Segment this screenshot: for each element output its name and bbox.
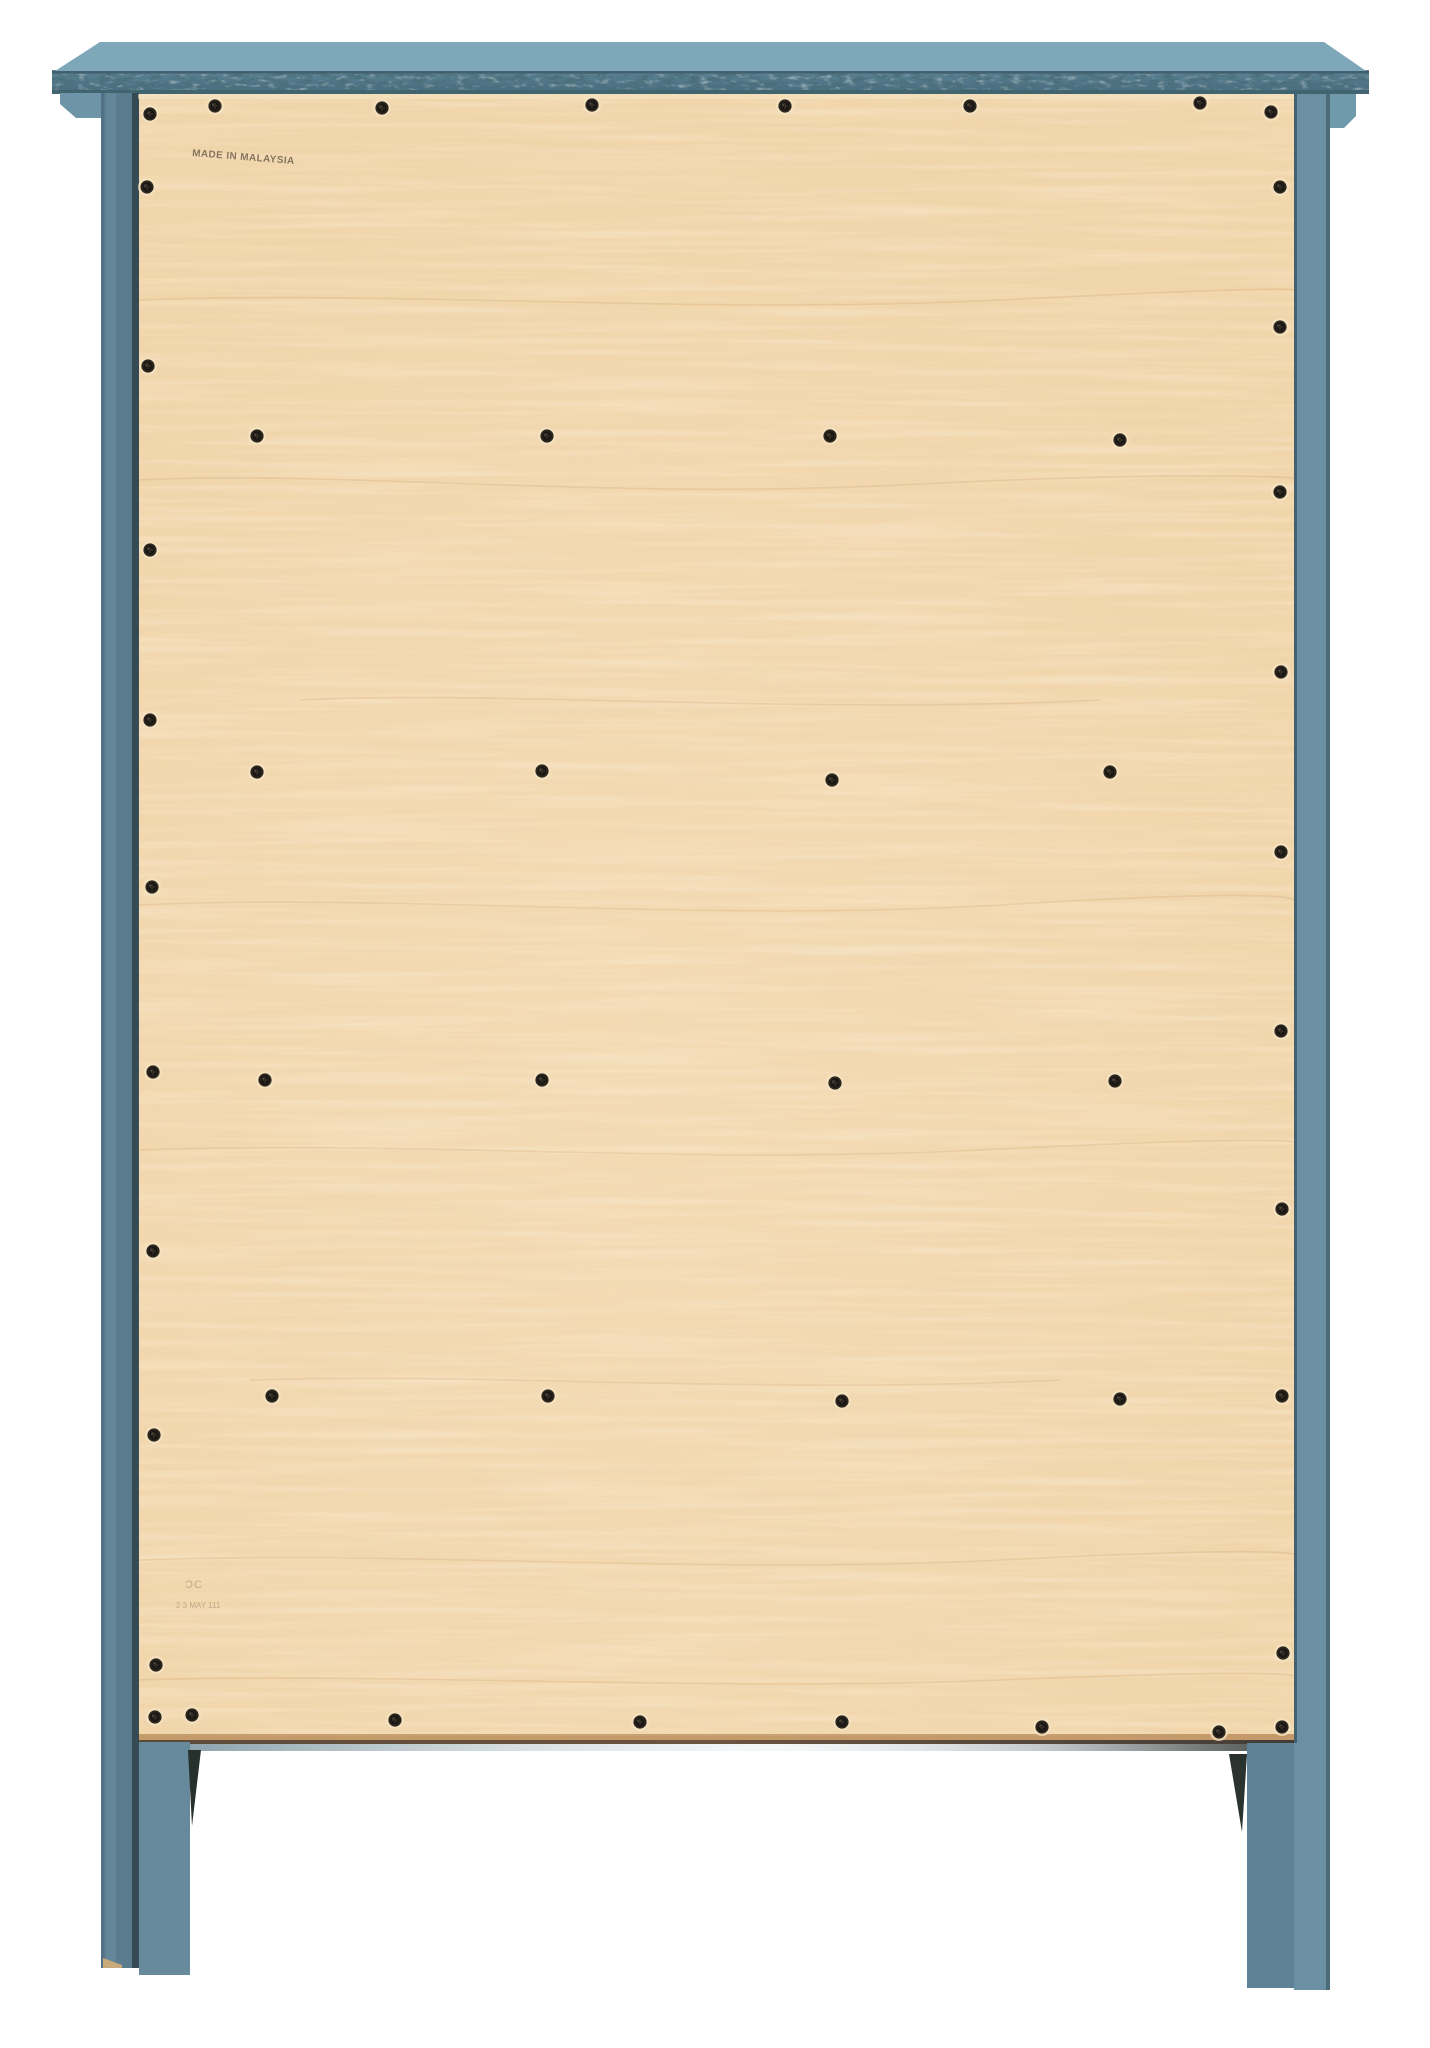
svg-text:2 3 MAY 111: 2 3 MAY 111 [176,1601,221,1610]
svg-text:ƆC: ƆC [185,1579,203,1591]
